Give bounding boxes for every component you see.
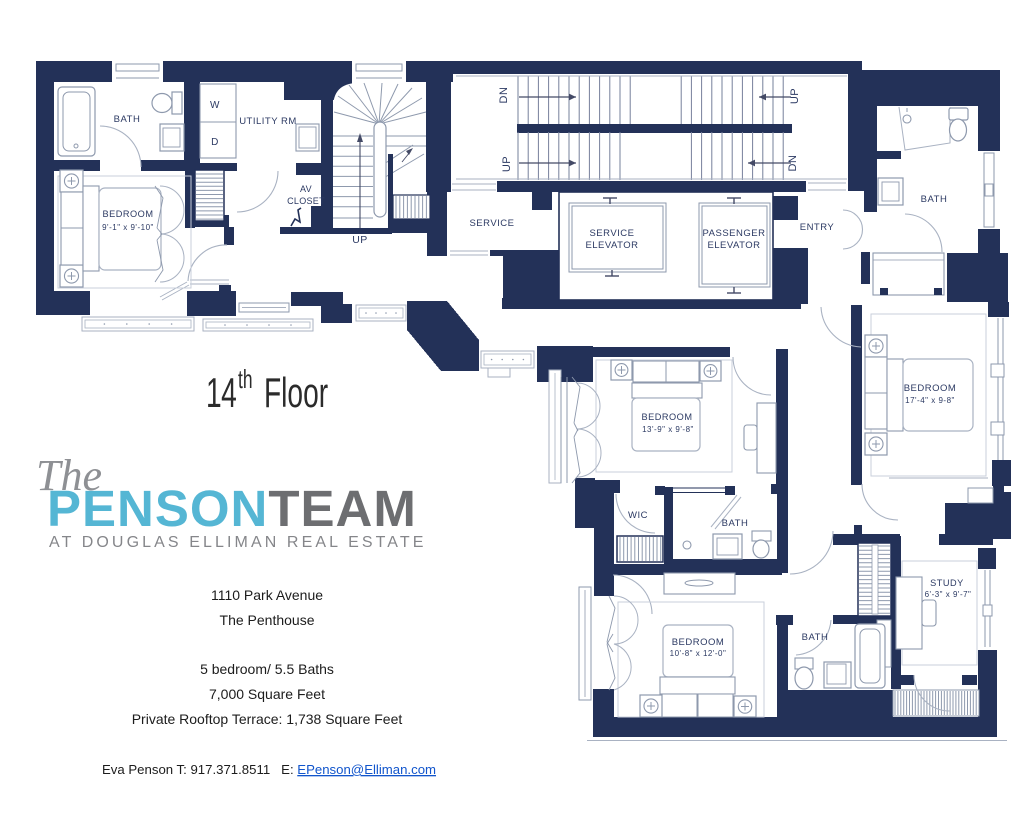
- svg-text:UP: UP: [789, 88, 801, 104]
- svg-text:ENTRY: ENTRY: [800, 222, 835, 233]
- svg-text:DN: DN: [498, 87, 510, 104]
- svg-text:5 bedroom/ 5.5 Baths: 5 bedroom/ 5.5 Baths: [200, 661, 334, 677]
- svg-text:AT DOUGLAS ELLIMAN REAL ESTATE: AT DOUGLAS ELLIMAN REAL ESTATE: [49, 534, 427, 551]
- svg-text:9'-1" x 9'-10": 9'-1" x 9'-10": [102, 223, 154, 232]
- svg-text:AV: AV: [300, 184, 312, 194]
- svg-text:UTILITY RM: UTILITY RM: [239, 116, 297, 127]
- svg-text:BEDROOM: BEDROOM: [672, 637, 725, 648]
- svg-text:th: th: [238, 365, 253, 394]
- svg-text:CLOSET: CLOSET: [287, 196, 325, 206]
- svg-text:10'-8" x 12'-0": 10'-8" x 12'-0": [670, 649, 727, 658]
- svg-text:UP: UP: [501, 156, 513, 172]
- svg-text:BEDROOM: BEDROOM: [642, 412, 693, 422]
- svg-text:ELEVATOR: ELEVATOR: [585, 240, 638, 251]
- svg-text:Floor: Floor: [264, 369, 328, 416]
- svg-text:SERVICE: SERVICE: [469, 218, 514, 229]
- svg-text:D: D: [211, 137, 219, 148]
- svg-text:Private Rooftop Terrace: 1,738: Private Rooftop Terrace: 1,738 Square Fe…: [132, 711, 403, 727]
- svg-text:BATH: BATH: [114, 114, 141, 125]
- svg-text:ELEVATOR: ELEVATOR: [707, 240, 760, 251]
- svg-text:DN: DN: [787, 155, 799, 172]
- svg-text:17'-4" x 9-8": 17'-4" x 9-8": [905, 396, 955, 405]
- svg-text:14: 14: [206, 369, 237, 416]
- svg-text:W: W: [210, 100, 220, 111]
- svg-text:WIC: WIC: [628, 510, 648, 521]
- svg-text:BEDROOM: BEDROOM: [904, 383, 957, 394]
- svg-text:BATH: BATH: [722, 518, 749, 529]
- svg-text:PASSENGER: PASSENGER: [703, 228, 766, 239]
- svg-text:The Penthouse: The Penthouse: [220, 612, 315, 628]
- svg-text:6'-3" x 9'-7": 6'-3" x 9'-7": [925, 590, 972, 599]
- svg-text:STUDY: STUDY: [930, 578, 964, 588]
- svg-text:BATH: BATH: [921, 194, 948, 205]
- svg-text:BATH: BATH: [802, 632, 829, 643]
- svg-text:UP: UP: [352, 234, 368, 246]
- svg-text:1110 Park Avenue: 1110 Park Avenue: [211, 587, 323, 603]
- svg-text:13'-9" x 9'-8": 13'-9" x 9'-8": [642, 425, 694, 434]
- svg-text:BEDROOM: BEDROOM: [103, 209, 154, 219]
- svg-text:7,000 Square Feet: 7,000 Square Feet: [209, 686, 325, 702]
- svg-text:SERVICE: SERVICE: [589, 228, 634, 239]
- svg-text:PENSONTEAM: PENSONTEAM: [47, 480, 417, 537]
- svg-text:Eva Penson T: 917.371.8511 E: Eva Penson T: 917.371.8511 E: EPenson@El…: [102, 762, 436, 777]
